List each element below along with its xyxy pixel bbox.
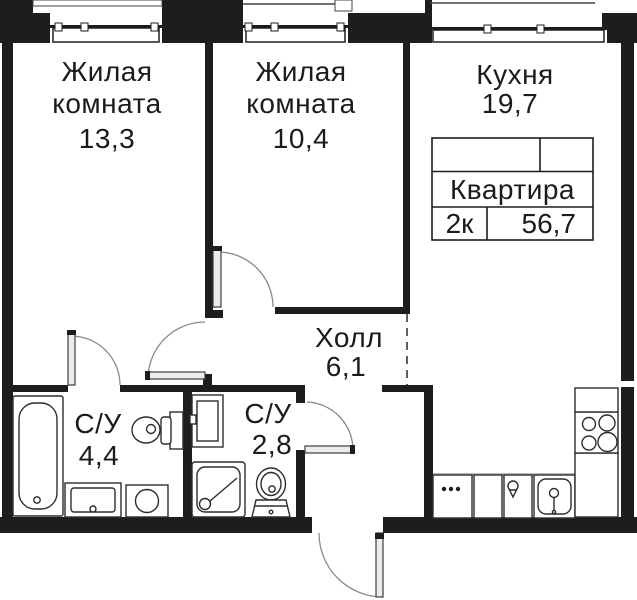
vanity-faucet [90,506,96,512]
burner [582,436,596,450]
balcony-post [335,0,352,11]
wall-right-upper [621,43,634,381]
entrance-door-leaf [376,533,383,597]
room1-label: Жилая комната [32,56,182,120]
knob-dot [442,487,446,491]
counter-unit-boiler [504,475,532,518]
wall-bath-top-b [120,385,305,392]
burner [599,415,615,431]
bath1-area: 4,4 [24,440,174,472]
bath1-door-arc [71,336,120,385]
bath2-area: 2,8 [197,429,347,461]
bath1-door-leaf [68,333,75,385]
wall-top-a [33,13,50,43]
knob-dot [456,487,460,491]
washing-machine-drum [136,490,159,513]
kitchen-faucet-base [550,489,559,498]
kitchen-window-sill [433,30,604,42]
room2-door-arc [218,252,273,307]
kitchen-faucet-end [552,510,555,513]
windows [33,0,607,42]
wall-kitchen-divider [403,43,410,314]
shower-drain [200,499,211,510]
kitchen-label: Кухня [440,59,590,91]
bathtub-drain [34,497,40,503]
knob-dot [449,487,453,491]
wall-kitchen-l-vertical [424,392,433,517]
room2-area: 10,4 [226,123,376,155]
room1-door-cap [145,371,150,380]
kitchen-window-glass-line [430,27,607,30]
room2-label: Жилая комната [226,56,376,120]
wall-top-right-a [602,13,637,30]
info-table-type: 2к [432,208,487,240]
toilet2-button [269,510,273,514]
wall-top-pier [162,0,243,43]
burner [598,433,617,452]
floor-plan: Жилая комната 13,3 Жилая комната 10,4 Ку… [0,0,637,600]
wall-top-right-b [607,30,637,43]
wall-right-lower [621,387,634,533]
wall-top-b [348,13,432,43]
info-table-title: Квартира [432,172,593,207]
kitchen-fixtures [433,388,618,518]
burner [583,418,596,431]
window1-sill [53,28,159,42]
bath2-door-cap [350,445,355,454]
bath1-label: С/У [23,408,173,440]
wall-bath-divider [183,392,192,517]
wall-top-tick [425,0,432,13]
room1-door-arc [148,322,205,379]
wall-right-joint-notch [621,381,634,387]
window2-sill [246,28,345,42]
kitchen-area: 19,7 [435,88,585,120]
wall-bath-top-a [11,385,68,392]
wall-left [2,43,13,533]
kitchen-cabinet [575,388,618,412]
room2-door-leaf [213,250,221,307]
wall-kitchen-l-horizontal [382,385,433,392]
room2-door-cap [212,246,222,251]
balcony-edge-left [33,0,162,6]
counter-unit-burners [433,475,472,518]
wall-room2-bottom [275,307,410,314]
hall-label: Холл [274,322,424,354]
wall-top-left-corner [0,0,33,43]
bath1-door-cap [67,330,76,335]
wall-bottom-right [383,517,637,533]
entrance-door-cap [375,533,384,539]
fridge [575,453,618,517]
wall-room-divider [205,43,213,318]
wall-room2-door-stub [205,310,223,318]
counter-unit-plain [474,475,502,518]
entrance-door-arc [319,533,383,597]
room1-area: 13,3 [32,123,182,155]
hall-area: 6,1 [271,351,421,383]
toilet2-flush [269,486,275,492]
room1-door-leaf [148,372,205,379]
wall-bottom-left [0,517,312,533]
info-table-total-area: 56,7 [487,208,585,240]
bath2-label: С/У [193,398,343,430]
